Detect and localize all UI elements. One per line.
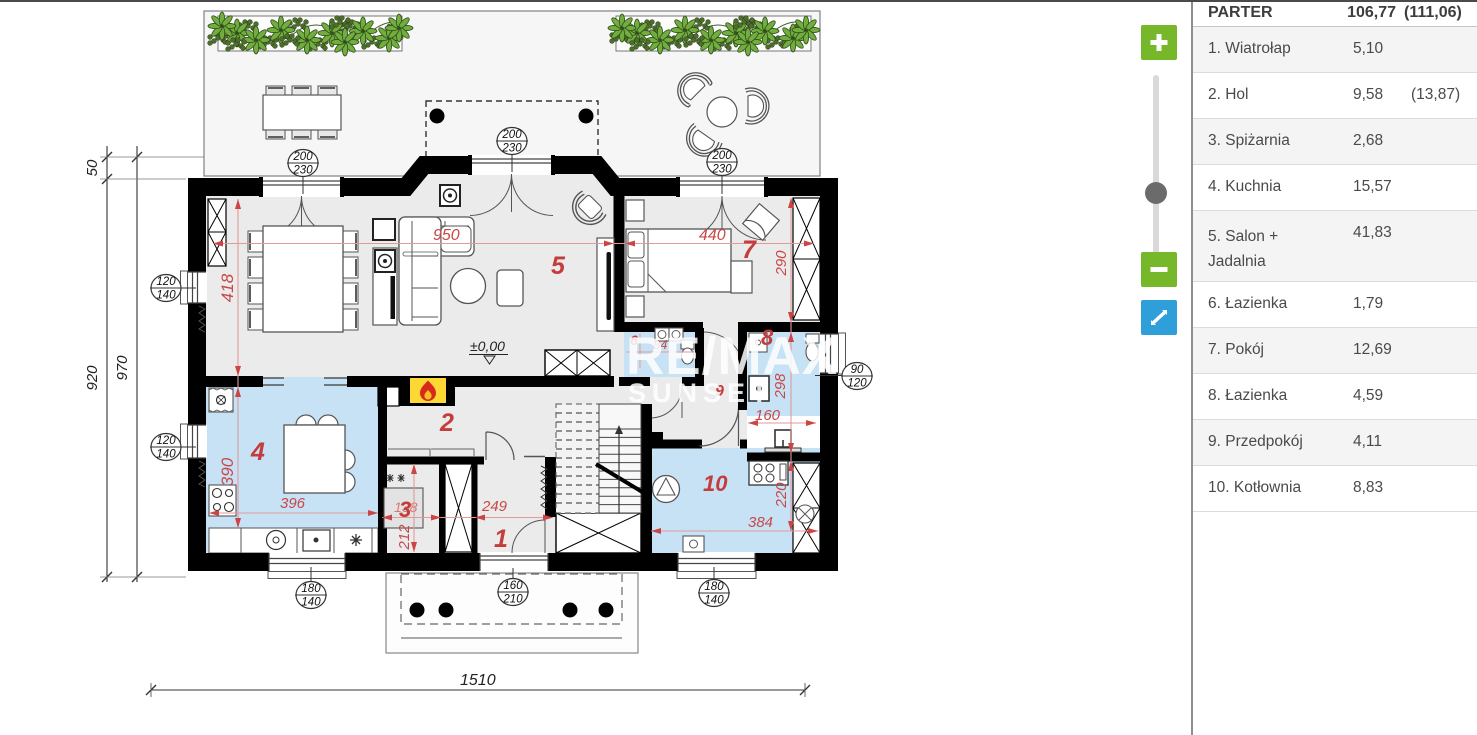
svg-text:200: 200 [501,129,522,141]
svg-text:4: 4 [250,438,265,466]
svg-text:2: 2 [439,409,454,437]
svg-text:950: 950 [433,227,460,244]
svg-text:120: 120 [847,378,867,390]
svg-text:140: 140 [704,595,724,607]
svg-text:140: 140 [156,290,176,302]
svg-text:220: 220 [773,482,790,509]
svg-text:384: 384 [748,514,773,531]
svg-text:970: 970 [114,355,131,381]
svg-text:140: 140 [301,597,321,609]
svg-text:120: 120 [156,435,176,447]
svg-text:10: 10 [703,471,728,496]
svg-text:±0,00: ±0,00 [470,338,505,354]
svg-text:920: 920 [84,365,101,391]
svg-text:1510: 1510 [460,672,496,689]
svg-text:418: 418 [218,273,237,302]
svg-text:230: 230 [501,143,522,155]
svg-text:160: 160 [503,580,523,592]
svg-text:200: 200 [711,150,732,162]
svg-text:120: 120 [156,276,176,288]
svg-text:230: 230 [711,164,732,176]
svg-text:5: 5 [551,252,566,280]
svg-text:50: 50 [84,159,101,176]
svg-text:180: 180 [301,583,321,595]
svg-text:3: 3 [399,497,411,522]
svg-text:440: 440 [699,227,726,244]
svg-text:210: 210 [502,594,523,606]
svg-text:390: 390 [218,457,237,486]
svg-text:180: 180 [704,581,724,593]
svg-text:396: 396 [280,495,306,512]
svg-text:212: 212 [396,524,413,551]
svg-text:1: 1 [494,525,508,553]
svg-text:90: 90 [851,364,864,376]
svg-text:8: 8 [761,325,774,350]
svg-text:140: 140 [156,449,176,461]
svg-text:249: 249 [481,498,508,515]
svg-text:SUNSET: SUNSET [628,378,774,408]
svg-text:7: 7 [742,236,757,264]
svg-text:200: 200 [292,151,313,163]
svg-text:290: 290 [773,250,790,277]
svg-text:160: 160 [755,407,781,424]
svg-text:230: 230 [292,165,313,177]
